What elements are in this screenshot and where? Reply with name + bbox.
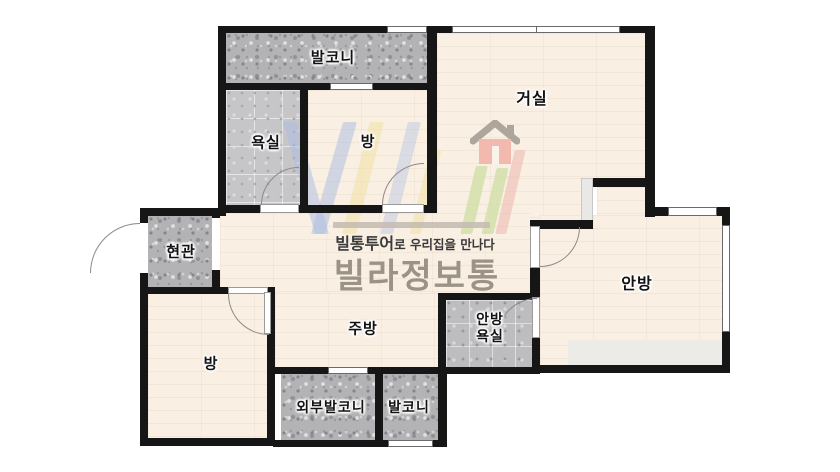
closet-strip <box>581 178 593 225</box>
anbang-door-arc <box>540 227 580 267</box>
bathroom-door-sill <box>260 204 299 213</box>
living-room-window <box>452 26 620 33</box>
label-entrance: 현관 <box>166 241 196 262</box>
floor-plan: 빌통투어로 우리집을 만나다 빌라정보통 발코니 욕실 방 거실 현관 안방 주… <box>0 0 840 472</box>
watermark-divider-bar <box>333 222 490 228</box>
watermark-title: 빌라정보통 <box>334 249 500 298</box>
wall-room-bottom-bottom <box>140 438 275 446</box>
anbang-right-window <box>722 225 730 332</box>
wall-balcony-bottom <box>218 83 437 90</box>
label-living-room: 거실 <box>516 85 547 109</box>
label-master-bathroom-line2: 욕실 <box>476 329 504 346</box>
label-room-bottom: 방 <box>204 353 219 374</box>
balcony-top-window <box>387 26 427 33</box>
label-balcony-top: 발코니 <box>311 47 355 68</box>
wall-left-upper <box>218 26 226 210</box>
label-balcony-bottom: 발코니 <box>388 397 430 417</box>
wall-bath-room-divider <box>300 90 308 213</box>
label-kitchen: 주방 <box>348 318 378 339</box>
room-bottom-door-sill <box>228 287 268 294</box>
label-bathroom: 욕실 <box>251 132 281 153</box>
room-bottom-door-arc <box>228 294 269 335</box>
label-master-bathroom: 안방 욕실 <box>476 312 504 346</box>
wall-balcony-mid-divider <box>375 374 383 446</box>
kitchen-bottom-window <box>328 367 368 374</box>
anbang-top-window <box>668 207 717 216</box>
room-top-door-sill <box>382 204 424 213</box>
wall-livingroom-left <box>427 26 437 213</box>
label-outer-balcony: 외부발코니 <box>296 397 365 417</box>
balcony-bottom-window <box>388 440 433 447</box>
label-master-bedroom: 안방 <box>621 270 652 294</box>
anbang-door-panel <box>530 226 540 268</box>
master-bedroom-notch-floor <box>597 187 645 215</box>
wall-anbang-bottom <box>540 365 730 373</box>
label-room-top: 방 <box>361 131 376 152</box>
wall-entrance-top <box>140 208 226 216</box>
master-bedroom-wardrobe <box>568 340 722 365</box>
front-door-arc <box>90 223 140 273</box>
wall-masterbath-left <box>438 293 446 374</box>
bathroom-door-arc <box>261 167 299 205</box>
label-master-bathroom-line1: 안방 <box>476 312 504 329</box>
front-door-gap <box>140 223 148 273</box>
watermark-house-icon <box>470 120 520 166</box>
wall-masterbath-bottom <box>438 367 540 374</box>
entrance-opening <box>212 218 220 270</box>
wall-balcony-bottom-right <box>438 374 447 447</box>
room-top-window <box>330 83 373 90</box>
room-top-door-arc <box>382 163 424 205</box>
wall-livingroom-right <box>645 26 655 217</box>
